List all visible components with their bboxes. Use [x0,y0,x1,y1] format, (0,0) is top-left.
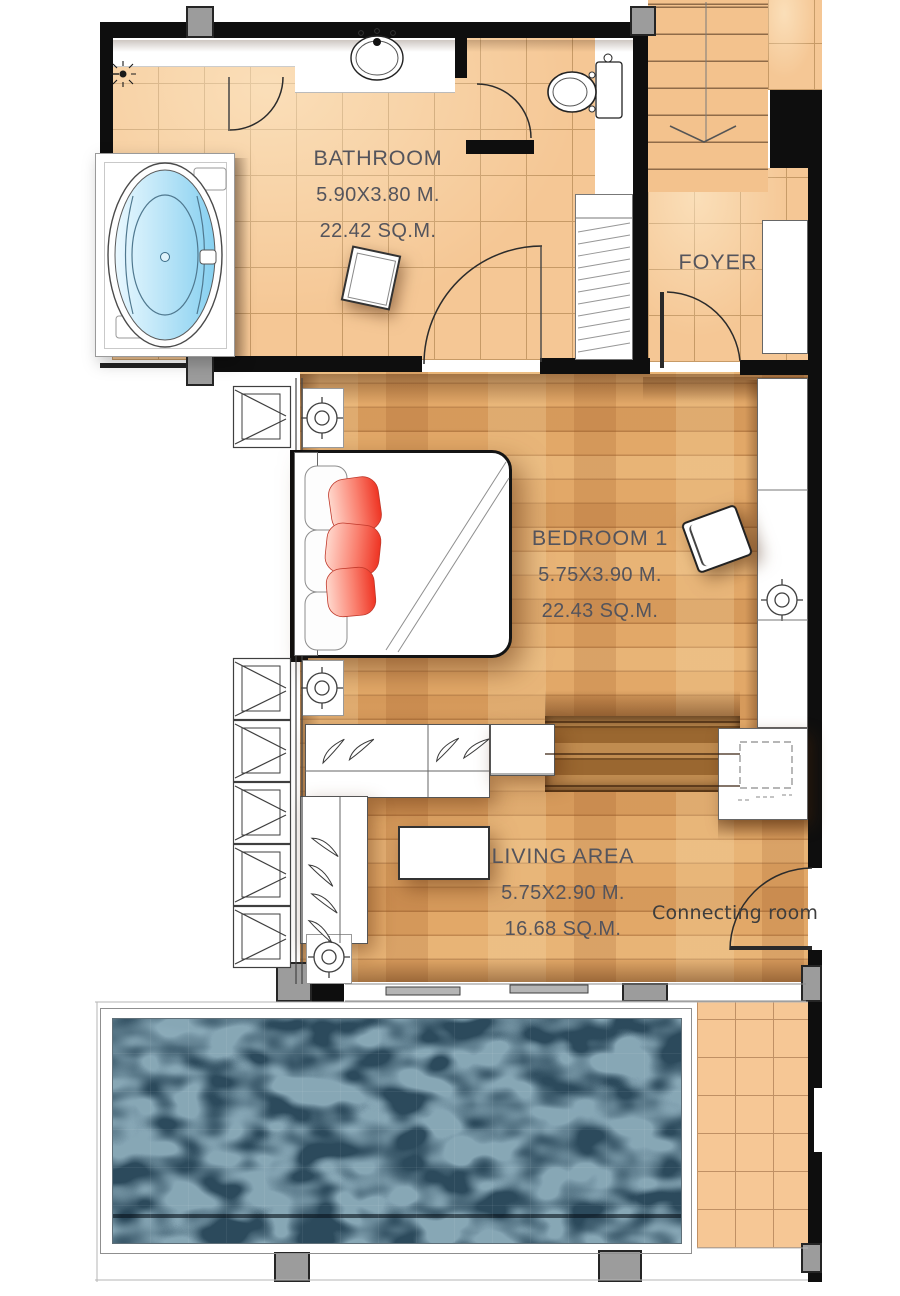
terrace-floor [697,1002,808,1248]
wall-top [100,22,640,38]
column [274,1252,310,1282]
column [630,6,656,36]
room-area: 22.43 SQ.M. [505,600,695,623]
wall-block-top-right [770,90,822,168]
louvre-window [234,845,291,906]
room-dimensions: 5.75X2.90 M. [468,882,658,905]
bed [298,450,512,658]
column [801,1243,822,1273]
louvre-window [234,721,291,782]
column [801,965,822,1002]
wall-left [100,22,113,162]
column [598,1250,642,1282]
shower-strip [112,38,295,67]
floor-plan: BATHROOM 5.90X3.80 M. 22.42 SQ.M. FOYER … [0,0,900,1296]
wall-wc-bottom [466,140,534,154]
shelving-unit [575,194,633,360]
room-name: BATHROOM [288,146,468,171]
sliding-door-track [343,982,808,1002]
sofa-horizontal-right [490,724,555,776]
wall-bathroom-south-left [214,356,422,372]
wall-bathroom-foyer [633,22,648,372]
bathroom-label: BATHROOM 5.90X3.80 M. 22.42 SQ.M. [288,146,468,243]
column-niche [306,934,352,984]
steps [545,716,740,792]
room-area: 16.68 SQ.M. [468,918,658,941]
stool-inner-line [347,253,396,306]
wall-window-notch [814,1088,822,1152]
louvre-window [234,387,291,448]
connecting-room-label: Connecting room d [652,902,822,924]
room-dimensions: 5.90X3.80 M. [288,184,468,207]
pool-water [112,1018,682,1244]
pool-tile-grid [112,1018,682,1244]
wall-under-tub [100,363,190,368]
bed-headboard [294,452,318,656]
wall-bathroom-south-right [540,358,650,374]
wall-right-bedroom [808,372,822,868]
bathtub-platform [95,153,235,357]
built-in-counter [718,728,808,820]
bathtub-platform-inner-line [104,162,227,349]
column [186,6,214,38]
column-niche [302,388,344,448]
sofa-horizontal [305,724,490,798]
foyer-closet [762,220,808,354]
louvre-window [234,659,291,720]
column-niche [302,660,344,716]
room-name: BEDROOM 1 [505,526,695,551]
vanity-counter [295,38,455,93]
louvre-window [234,907,291,968]
column [622,983,668,1002]
staircase [648,0,768,192]
wardrobe [757,378,808,728]
bedroom-label: BEDROOM 1 5.75X3.90 M. 22.43 SQ.M. [505,526,695,623]
foyer-label: FOYER [648,250,788,275]
sofa-vertical [300,796,368,944]
room-name: LIVING AREA [468,844,658,869]
louvre-window [234,783,291,844]
wc-floor [595,38,633,210]
wall-living-south-stub [310,984,344,1002]
room-dimensions: 5.75X3.90 M. [505,564,695,587]
foyer-floor-top-right [768,0,822,90]
wall-right-upper [808,168,822,372]
living-area-label: LIVING AREA 5.75X2.90 M. 16.68 SQ.M. [468,844,658,941]
room-area: 22.42 SQ.M. [288,220,468,243]
column [186,354,214,386]
wall-wc-stub [455,26,467,78]
